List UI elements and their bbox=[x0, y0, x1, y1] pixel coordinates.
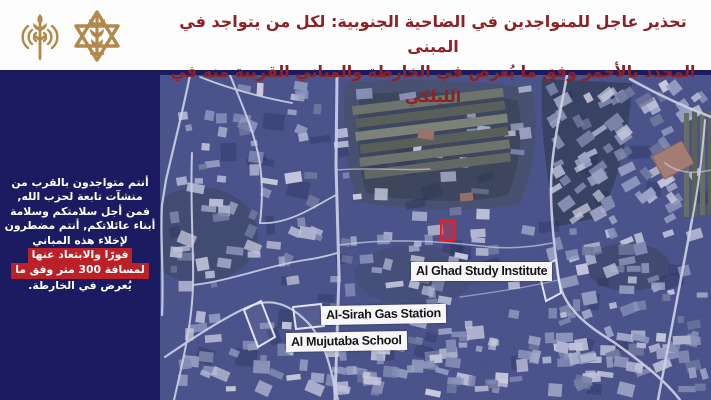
warning-title: تحذير عاجل للمتواجدين في الضاحية الجنوبي… bbox=[163, 9, 703, 109]
map-label-al-mujutaba-school: Al Mujutaba School bbox=[286, 331, 407, 352]
header-icons bbox=[14, 6, 134, 64]
warning-title-line1: تحذير عاجل للمتواجدين في الضاحية الجنوبي… bbox=[163, 9, 703, 59]
warning-line-highlighted: لمسافة 300 متر وفق ما bbox=[2, 263, 158, 278]
warning-line: فمن أجل سلامتكم وسلامة bbox=[2, 205, 158, 219]
broadcast-antenna-icon bbox=[14, 8, 66, 64]
warning-line: منشآت تابعة لحزب الله, bbox=[2, 190, 158, 204]
map-label-al-ghad-study-institute: Al Ghad Study Institute bbox=[411, 262, 552, 281]
header-band: تحذير عاجل للمتواجدين في الضاحية الجنوبي… bbox=[0, 0, 711, 70]
sidebar-warning-text: أنتم متواجدون بالقرب من منشآت تابعة لحزب… bbox=[2, 176, 158, 293]
warning-line: لإخلاء هذه المباني bbox=[2, 234, 158, 248]
warning-line: أنتم متواجدون بالقرب من bbox=[2, 176, 158, 190]
warning-line-highlighted: فورًا والابتعاد عنها bbox=[2, 248, 158, 263]
warning-line: أبناء عائلاتكم, أنتم مضطرون bbox=[2, 219, 158, 233]
warning-line: يُعرض في الخارطة. bbox=[2, 279, 158, 293]
satellite-map: Al Ghad Study Institute Al-Sirah Gas Sta… bbox=[160, 75, 711, 400]
idf-emblem-icon bbox=[68, 8, 126, 64]
warning-title-line2: المحدد بالأحمر وفق ما يُعرض في الخارطة و… bbox=[163, 59, 703, 109]
map-label-al-sirah-gas-station: Al-Sirah Gas Station bbox=[321, 304, 446, 325]
satellite-imagery bbox=[160, 75, 711, 400]
evacuation-warning-graphic: Al Ghad Study Institute Al-Sirah Gas Sta… bbox=[0, 0, 711, 400]
target-building-marker bbox=[440, 219, 456, 241]
